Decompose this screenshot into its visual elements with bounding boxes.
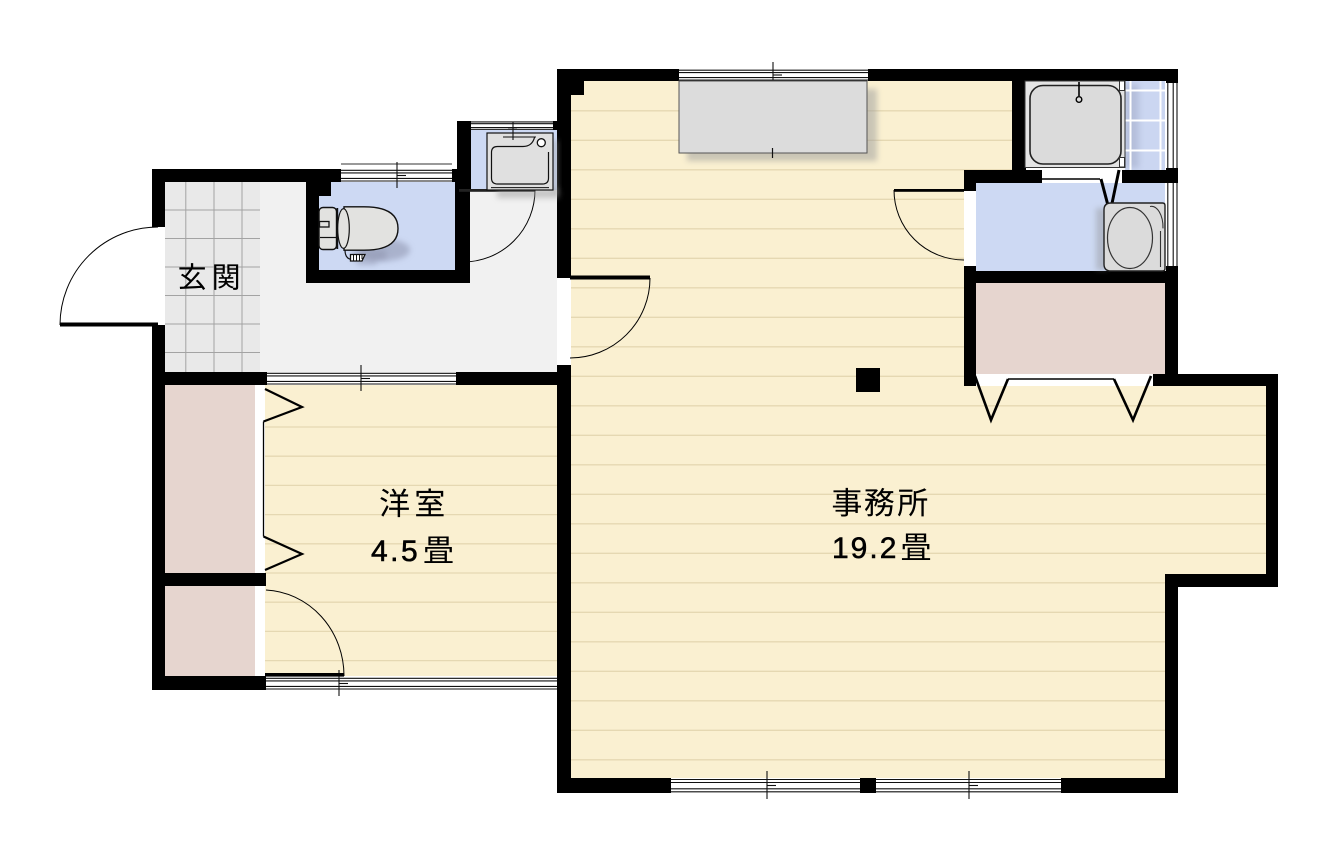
svg-text:4.5: 4.5	[371, 535, 420, 568]
svg-text:19.2: 19.2	[832, 532, 898, 565]
